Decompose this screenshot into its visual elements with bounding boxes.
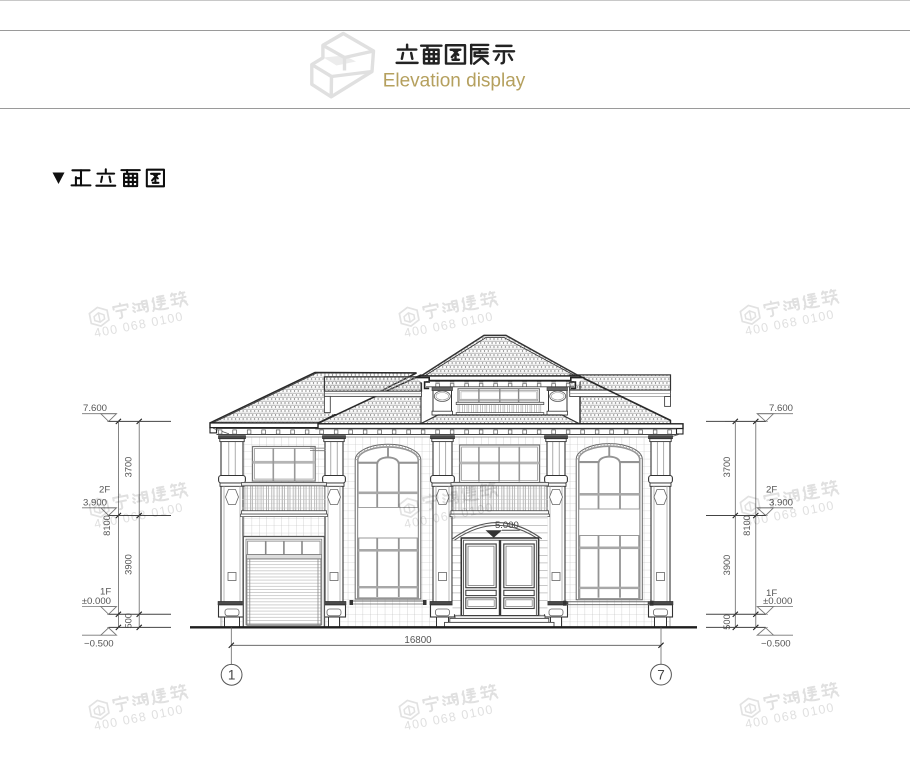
svg-text:2F: 2F <box>99 485 110 496</box>
svg-text:7: 7 <box>657 667 665 682</box>
svg-text:7.600: 7.600 <box>769 403 793 414</box>
svg-text:3900: 3900 <box>124 554 134 575</box>
svg-text:Elevation display: Elevation display <box>383 71 526 92</box>
svg-text:16800: 16800 <box>404 635 432 646</box>
svg-text:−0.500: −0.500 <box>761 639 791 650</box>
svg-text:500: 500 <box>124 613 134 629</box>
svg-text:±0.000: ±0.000 <box>763 596 792 607</box>
svg-text:−0.500: −0.500 <box>84 639 114 650</box>
svg-text:3700: 3700 <box>124 457 134 478</box>
svg-text:7.600: 7.600 <box>83 403 107 414</box>
svg-text:±0.000: ±0.000 <box>82 596 111 607</box>
svg-text:3700: 3700 <box>722 457 732 478</box>
svg-text:3900: 3900 <box>722 555 732 576</box>
svg-text:5.000: 5.000 <box>495 520 519 531</box>
svg-text:1: 1 <box>228 668 236 683</box>
